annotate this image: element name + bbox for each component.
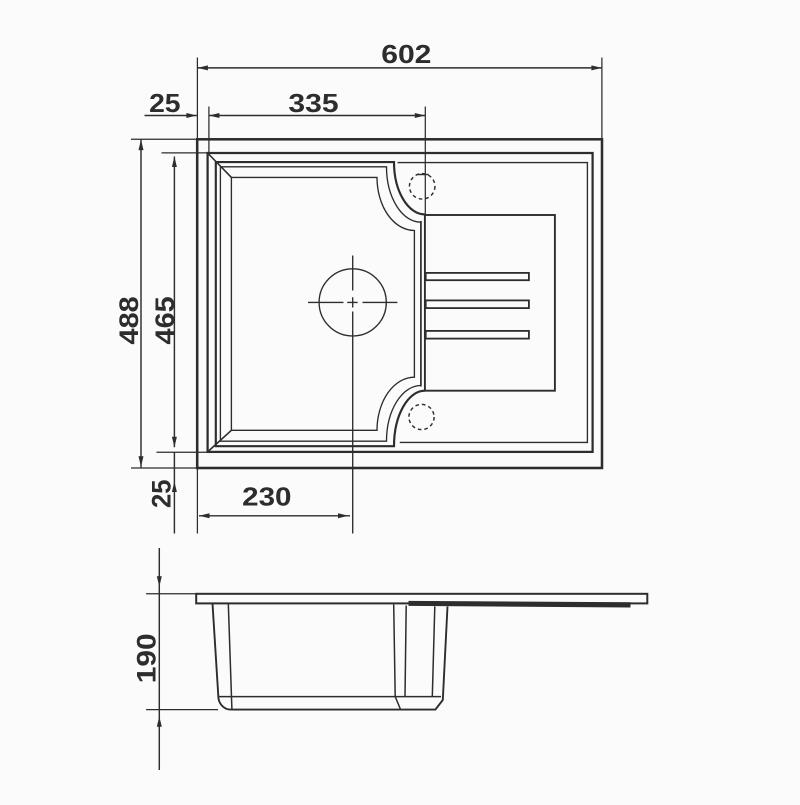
svg-text:230: 230 xyxy=(242,482,291,511)
svg-text:335: 335 xyxy=(288,89,338,117)
svg-text:190: 190 xyxy=(132,633,162,683)
svg-text:25: 25 xyxy=(146,479,177,508)
svg-text:465: 465 xyxy=(150,296,180,344)
svg-text:488: 488 xyxy=(114,296,144,344)
svg-text:602: 602 xyxy=(381,40,431,68)
svg-text:25: 25 xyxy=(149,89,180,117)
